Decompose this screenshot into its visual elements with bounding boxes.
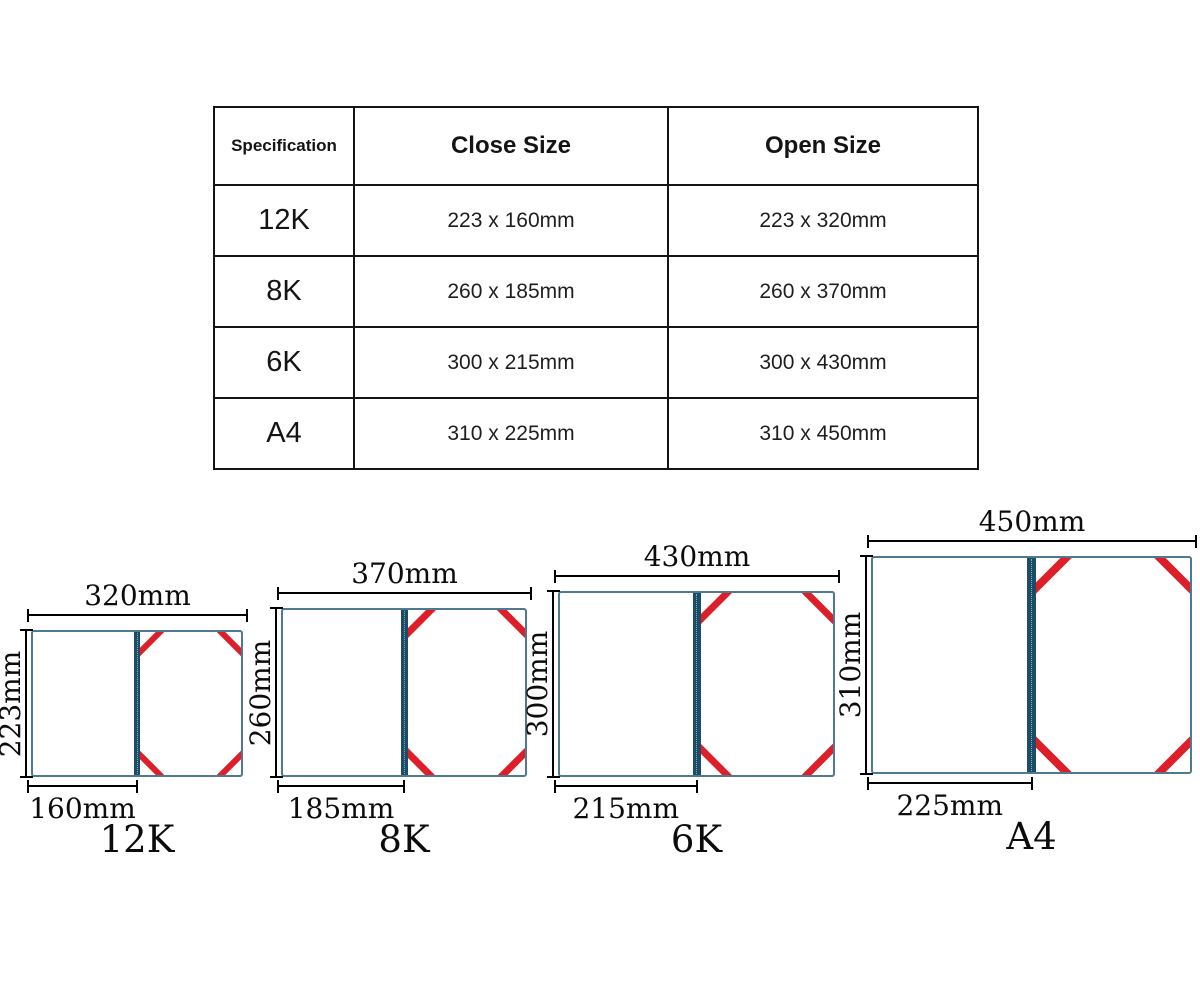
folder-right-page: [1036, 558, 1190, 772]
dimension-height: 310mm: [865, 556, 867, 774]
corner-ribbon-bottom-left: [408, 740, 443, 775]
dimension-height: 260mm: [275, 608, 277, 777]
open-size-cell: 223 x 320mm: [668, 185, 978, 256]
open-width-value: 430mm: [555, 543, 839, 571]
open-size-cell: 300 x 430mm: [668, 327, 978, 398]
corner-ribbon-bottom-right: [490, 740, 525, 775]
diagram-label: 8K: [281, 821, 527, 858]
dimension-open-width: 430mm: [555, 575, 839, 577]
dimension-close-width: 160mm: [28, 785, 137, 787]
spec-cell: A4: [214, 398, 354, 469]
corner-ribbon-top-right: [1145, 558, 1190, 603]
table-row-6k: 6K 300 x 215mm 300 x 430mm: [214, 327, 978, 398]
corner-ribbon-top-right: [794, 593, 833, 632]
corner-ribbon-top-right: [210, 632, 241, 663]
folder-outline: [31, 630, 243, 777]
dimension-close-width: 215mm: [555, 785, 697, 787]
folder-right-page: [408, 610, 526, 775]
corner-ribbon-bottom-left: [140, 744, 171, 775]
open-width-value: 370mm: [278, 560, 531, 588]
height-value: 223mm: [0, 650, 25, 757]
spec-cell: 8K: [214, 256, 354, 327]
corner-ribbon-bottom-right: [1145, 727, 1190, 772]
close-size-cell: 310 x 225mm: [354, 398, 668, 469]
dimension-open-width: 320mm: [28, 614, 247, 616]
folder-right-page: [701, 593, 834, 775]
folder-outline: [281, 608, 527, 777]
open-size-cell: 310 x 450mm: [668, 398, 978, 469]
height-value: 310mm: [837, 612, 865, 719]
corner-ribbon-bottom-right: [210, 744, 241, 775]
diagram-label: A4: [871, 818, 1192, 855]
diagram-label: 12K: [31, 821, 243, 858]
dimension-open-width: 370mm: [278, 592, 531, 594]
corner-ribbon-top-left: [140, 632, 171, 663]
diagram-label: 6K: [558, 821, 835, 858]
corner-ribbon-bottom-left: [701, 736, 740, 775]
dimension-close-width: 225mm: [868, 782, 1032, 784]
table-row-12k: 12K 223 x 160mm 223 x 320mm: [214, 185, 978, 256]
spec-table: Specification Close Size Open Size 12K 2…: [213, 106, 979, 470]
open-width-value: 320mm: [28, 582, 247, 610]
open-size-cell: 260 x 370mm: [668, 256, 978, 327]
corner-ribbon-top-left: [408, 610, 443, 645]
open-width-value: 450mm: [868, 508, 1196, 536]
diagram-12k: 320mm 223mm 160mm 12K: [31, 630, 243, 777]
close-size-cell: 223 x 160mm: [354, 185, 668, 256]
folder-outline: [871, 556, 1192, 774]
corner-ribbon-top-left: [701, 593, 740, 632]
folder-outline: [558, 591, 835, 777]
dimension-close-width: 185mm: [278, 785, 404, 787]
table-row-8k: 8K 260 x 185mm 260 x 370mm: [214, 256, 978, 327]
dimension-height: 223mm: [25, 630, 27, 777]
corner-ribbon-bottom-right: [794, 736, 833, 775]
close-size-cell: 260 x 185mm: [354, 256, 668, 327]
close-size-cell: 300 x 215mm: [354, 327, 668, 398]
spec-infographic: Specification Close Size Open Size 12K 2…: [0, 0, 1200, 1000]
corner-ribbon-bottom-left: [1036, 727, 1081, 772]
table-row-a4: A4 310 x 225mm 310 x 450mm: [214, 398, 978, 469]
corner-ribbon-top-left: [1036, 558, 1081, 603]
table-header-row: Specification Close Size Open Size: [214, 107, 978, 185]
spec-cell: 6K: [214, 327, 354, 398]
dimension-height: 300mm: [552, 591, 554, 777]
diagram-a4: 450mm 310mm 225mm A4: [871, 556, 1192, 774]
dimension-open-width: 450mm: [868, 540, 1196, 542]
folder-spine: [693, 593, 701, 775]
height-value: 300mm: [524, 631, 552, 738]
col-header-specification: Specification: [214, 107, 354, 185]
corner-ribbon-top-right: [490, 610, 525, 645]
height-value: 260mm: [247, 639, 275, 746]
folder-spine: [401, 610, 408, 775]
spec-cell: 12K: [214, 185, 354, 256]
folder-spine: [1027, 558, 1036, 772]
diagram-6k: 430mm 300mm 215mm 6K: [558, 591, 835, 777]
col-header-close-size: Close Size: [354, 107, 668, 185]
folder-right-page: [140, 632, 241, 775]
diagram-8k: 370mm 260mm 185mm 8K: [281, 608, 527, 777]
col-header-open-size: Open Size: [668, 107, 978, 185]
